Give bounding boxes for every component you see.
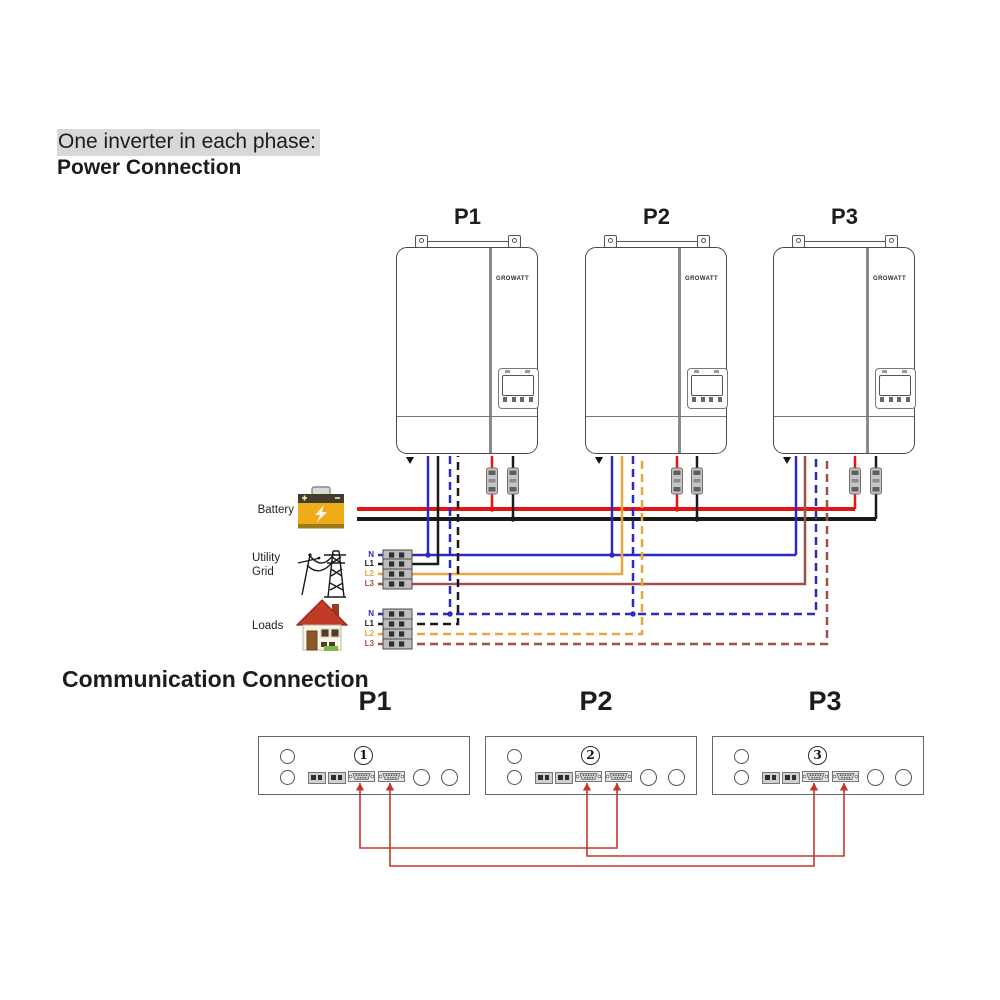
lcd-screen — [502, 375, 534, 396]
inverter-bottom-seam — [774, 416, 914, 417]
inverter-panel-seam — [489, 248, 492, 453]
growatt-logo: GROWATT — [685, 276, 725, 282]
circuit-breaker — [383, 609, 412, 619]
inverter-1: GROWATT — [396, 233, 539, 463]
utility-l1-label: L1 — [356, 559, 374, 568]
panel-hole — [507, 749, 522, 764]
comm-p1-title: P1 — [330, 686, 420, 717]
panel-number-badge: 1 — [354, 746, 373, 765]
panel-hole — [280, 770, 295, 785]
terminal-block — [308, 772, 326, 784]
manual-diagram-page: One inverter in each phase: Power Connec… — [0, 0, 1000, 1000]
wire-loads-l1 — [378, 456, 458, 624]
battery-fuse — [487, 468, 498, 494]
panel-number-badge: 2 — [581, 746, 600, 765]
wire-utility-l3 — [378, 456, 805, 584]
battery-label: Battery — [250, 504, 294, 518]
inverter-3-title: P3 — [773, 204, 916, 230]
inverter-bottom-seam — [586, 416, 726, 417]
junction-dot — [609, 552, 614, 557]
panel-number-badge: 3 — [808, 746, 827, 765]
db9-comm-port-icon — [348, 770, 375, 783]
panel-hole — [867, 769, 884, 786]
db9-comm-port-icon — [575, 770, 602, 783]
loads-neutral-label: N — [356, 609, 374, 618]
inverter-body: GROWATT — [396, 247, 538, 454]
inverter-body: GROWATT — [773, 247, 915, 454]
utility-l3-label: L3 — [356, 579, 374, 588]
junction-dot — [630, 611, 635, 616]
comm-panel-3: 3 — [712, 736, 924, 795]
power-connection-title: Power Connection — [57, 156, 241, 180]
battery-icon — [297, 486, 345, 530]
circuit-breaker — [383, 550, 412, 560]
inverter-panel-seam — [866, 248, 869, 453]
battery-fuse — [850, 468, 861, 494]
inverter-display — [498, 368, 539, 409]
inverter-1-title: P1 — [396, 204, 539, 230]
lcd-screen — [691, 375, 723, 396]
inverter-display — [687, 368, 728, 409]
display-buttons — [880, 397, 910, 402]
db9-comm-port-icon — [378, 770, 405, 783]
circuit-breaker — [383, 619, 412, 629]
db9-comm-port-icon — [802, 770, 829, 783]
terminal-block — [555, 772, 573, 784]
terminal-block — [328, 772, 346, 784]
circuit-breaker — [383, 639, 412, 649]
display-buttons — [503, 397, 533, 402]
panel-hole — [507, 770, 522, 785]
comm-p2-title: P2 — [551, 686, 641, 717]
comm-cable-p1-p3 — [390, 783, 814, 866]
comm-panel-1: 1 — [258, 736, 470, 795]
circuit-breaker — [383, 629, 412, 639]
terminal-block — [782, 772, 800, 784]
inverter-2: GROWATT — [585, 233, 728, 463]
loads-label: Loads — [252, 620, 296, 634]
display-buttons — [692, 397, 722, 402]
wire-loads-neutral — [378, 456, 816, 614]
loads-l1-label: L1 — [356, 619, 374, 628]
panel-hole — [895, 769, 912, 786]
growatt-logo: GROWATT — [873, 276, 913, 282]
wire-loads-l2 — [378, 456, 642, 634]
panel-hole — [640, 769, 657, 786]
inverter-foot — [783, 457, 791, 464]
inverter-foot — [406, 457, 414, 464]
inverter-panel-seam — [678, 248, 681, 453]
panel-hole — [668, 769, 685, 786]
circuit-breaker — [383, 559, 412, 569]
junction-dot — [489, 506, 494, 511]
panel-hole — [280, 749, 295, 764]
battery-fuse — [672, 468, 683, 494]
circuit-breaker — [383, 579, 412, 589]
terminal-block — [535, 772, 553, 784]
loads-l3-label: L3 — [356, 639, 374, 648]
house-icon — [296, 598, 348, 655]
inverter-3: GROWATT — [773, 233, 916, 463]
panel-hole — [441, 769, 458, 786]
junction-dot — [510, 516, 515, 521]
utility-grid-label: Utility Grid — [252, 552, 294, 579]
lcd-screen — [879, 375, 911, 396]
comm-panel-2: 2 — [485, 736, 697, 795]
utility-neutral-label: N — [356, 550, 374, 559]
junction-dot — [694, 516, 699, 521]
panel-hole — [734, 749, 749, 764]
inverter-bottom-seam — [397, 416, 537, 417]
growatt-logo: GROWATT — [496, 276, 536, 282]
transmission-tower-icon — [294, 543, 346, 599]
inverter-foot — [595, 457, 603, 464]
comm-p3-title: P3 — [780, 686, 870, 717]
panel-hole — [413, 769, 430, 786]
terminal-block — [762, 772, 780, 784]
battery-fuse — [692, 468, 703, 494]
wire-utility-l2 — [378, 456, 622, 574]
battery-fuse — [871, 468, 882, 494]
inverter-body: GROWATT — [585, 247, 727, 454]
page-subtitle: One inverter in each phase: — [57, 129, 320, 156]
inverter-display — [875, 368, 916, 409]
battery-fuse — [508, 468, 519, 494]
inverter-2-title: P2 — [585, 204, 728, 230]
panel-hole — [734, 770, 749, 785]
junction-dot — [674, 506, 679, 511]
circuit-breaker — [383, 569, 412, 579]
communication-connection-title: Communication Connection — [62, 666, 369, 693]
wire-utility-l1 — [378, 456, 438, 564]
db9-comm-port-icon — [832, 770, 859, 783]
utility-l2-label: L2 — [356, 569, 374, 578]
loads-l2-label: L2 — [356, 629, 374, 638]
wire-loads-l3 — [378, 456, 827, 644]
junction-dot — [425, 552, 430, 557]
db9-comm-port-icon — [605, 770, 632, 783]
junction-dot — [447, 611, 452, 616]
